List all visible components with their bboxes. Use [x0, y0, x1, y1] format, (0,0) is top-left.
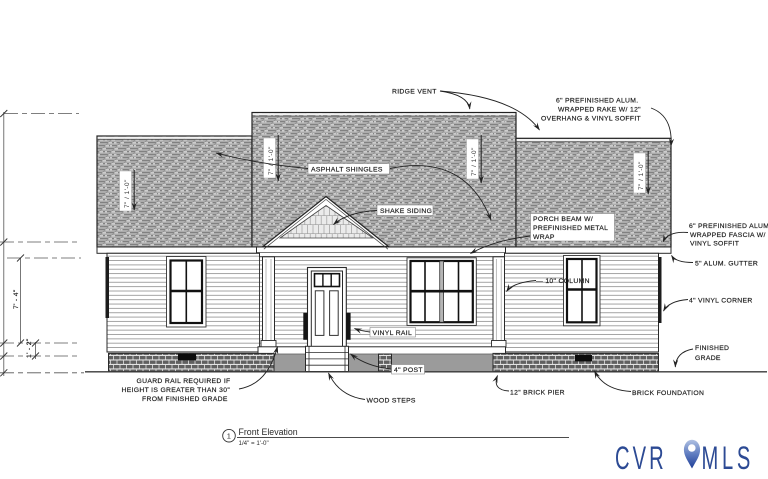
svg-text:GRADE: GRADE — [695, 355, 721, 362]
svg-text:4" VINYL CORNER: 4" VINYL CORNER — [689, 298, 753, 305]
svg-text:PORCH BEAM W/: PORCH BEAM W/ — [533, 216, 593, 223]
svg-text:7" / 1'-0": 7" / 1'-0" — [471, 147, 478, 176]
svg-text:FROM FINISHED GRADE: FROM FINISHED GRADE — [142, 396, 228, 403]
svg-text:RIDGE VENT: RIDGE VENT — [392, 89, 437, 96]
svg-text:VINYL RAIL: VINYL RAIL — [373, 330, 413, 337]
svg-text:7" / 1'-0": 7" / 1'-0" — [124, 179, 131, 208]
svg-text:OVERHANG & VINYL SOFFIT: OVERHANG & VINYL SOFFIT — [541, 116, 641, 123]
svg-text:— 10" COLUMN: — 10" COLUMN — [536, 278, 590, 285]
svg-text:VINYL SOFFIT: VINYL SOFFIT — [690, 241, 739, 248]
svg-text:CVR: CVR — [615, 440, 667, 476]
svg-text:HEIGHT IS GREATER THAN 30": HEIGHT IS GREATER THAN 30" — [122, 387, 231, 394]
svg-text:1: 1 — [227, 432, 231, 441]
svg-text:7' - 4": 7' - 4" — [13, 289, 20, 309]
svg-text:1/4" = 1'-0": 1/4" = 1'-0" — [239, 440, 269, 447]
svg-text:BRICK FOUNDATION: BRICK FOUNDATION — [632, 390, 704, 397]
svg-text:WRAP: WRAP — [533, 234, 555, 241]
svg-text:12" BRICK PIER: 12" BRICK PIER — [510, 390, 565, 397]
svg-text:1' - 2": 1' - 2" — [26, 338, 33, 358]
svg-text:6" PREFINISHED ALUM.: 6" PREFINISHED ALUM. — [556, 98, 638, 105]
svg-text:PREFINISHED METAL: PREFINISHED METAL — [533, 225, 608, 232]
svg-text:WRAPPED FASCIA W/: WRAPPED FASCIA W/ — [690, 232, 766, 239]
svg-text:7" / 1'-0": 7" / 1'-0" — [268, 146, 275, 175]
svg-text:ASPHALT SHINGLES: ASPHALT SHINGLES — [311, 167, 383, 174]
svg-text:SHAKE SIDING: SHAKE SIDING — [380, 208, 432, 215]
svg-text:GUARD RAIL REQUIRED IF: GUARD RAIL REQUIRED IF — [137, 378, 231, 385]
svg-text:MLS: MLS — [702, 440, 755, 476]
svg-text:Front Elevation: Front Elevation — [239, 427, 298, 437]
svg-text:WRAPPED RAKE W/ 12": WRAPPED RAKE W/ 12" — [558, 107, 641, 114]
svg-text:WOOD STEPS: WOOD STEPS — [367, 398, 416, 405]
svg-text:4" POST: 4" POST — [394, 367, 423, 374]
svg-text:7" / 1'-0": 7" / 1'-0" — [638, 161, 645, 190]
svg-text:FINISHED: FINISHED — [695, 345, 729, 352]
svg-text:5" ALUM. GUTTER: 5" ALUM. GUTTER — [695, 261, 758, 268]
svg-text:6" PREFINISHED ALUM: 6" PREFINISHED ALUM — [689, 223, 768, 230]
